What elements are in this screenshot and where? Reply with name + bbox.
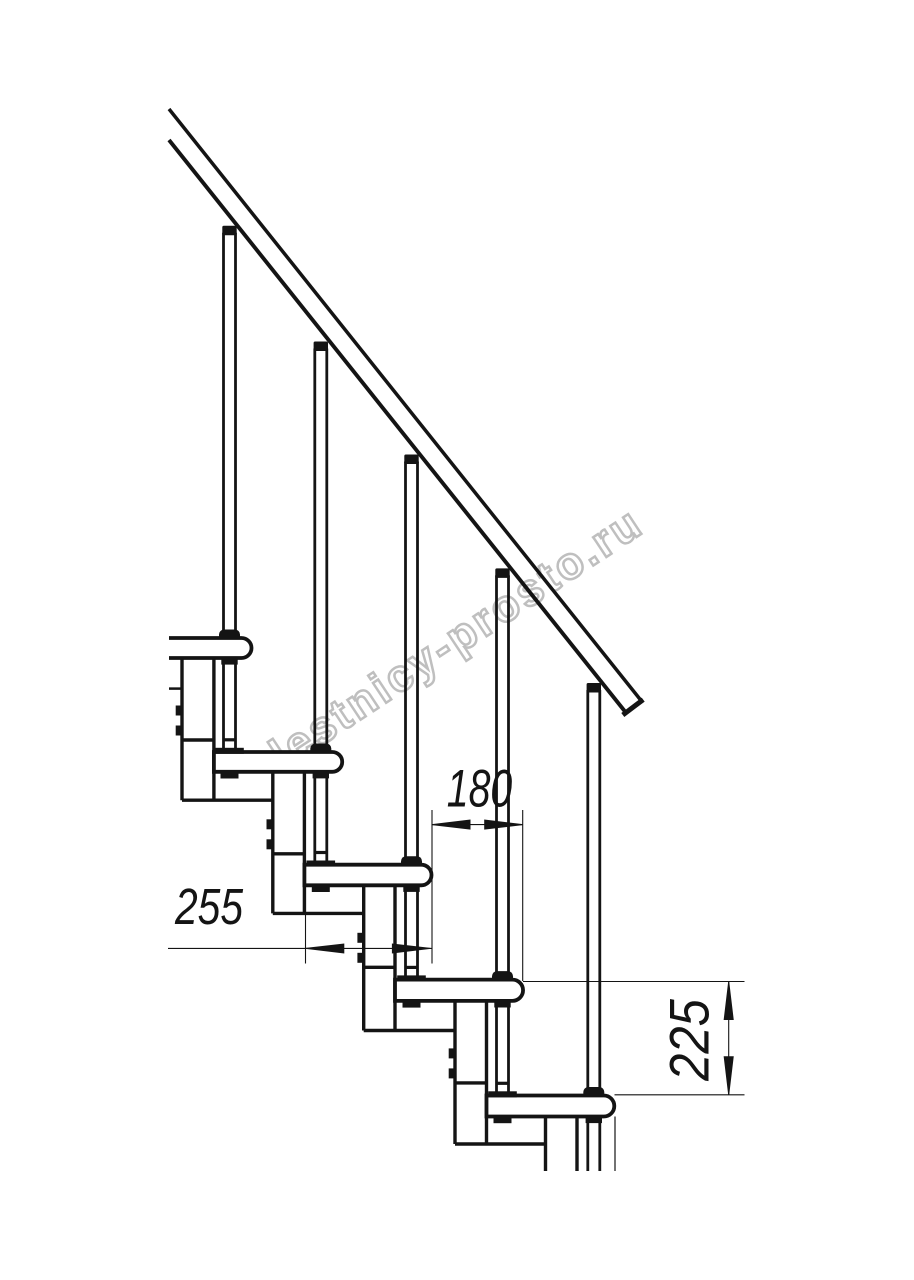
svg-text:180: 180 (447, 759, 512, 818)
svg-text:225: 225 (658, 998, 721, 1081)
svg-text:255: 255 (174, 878, 243, 935)
